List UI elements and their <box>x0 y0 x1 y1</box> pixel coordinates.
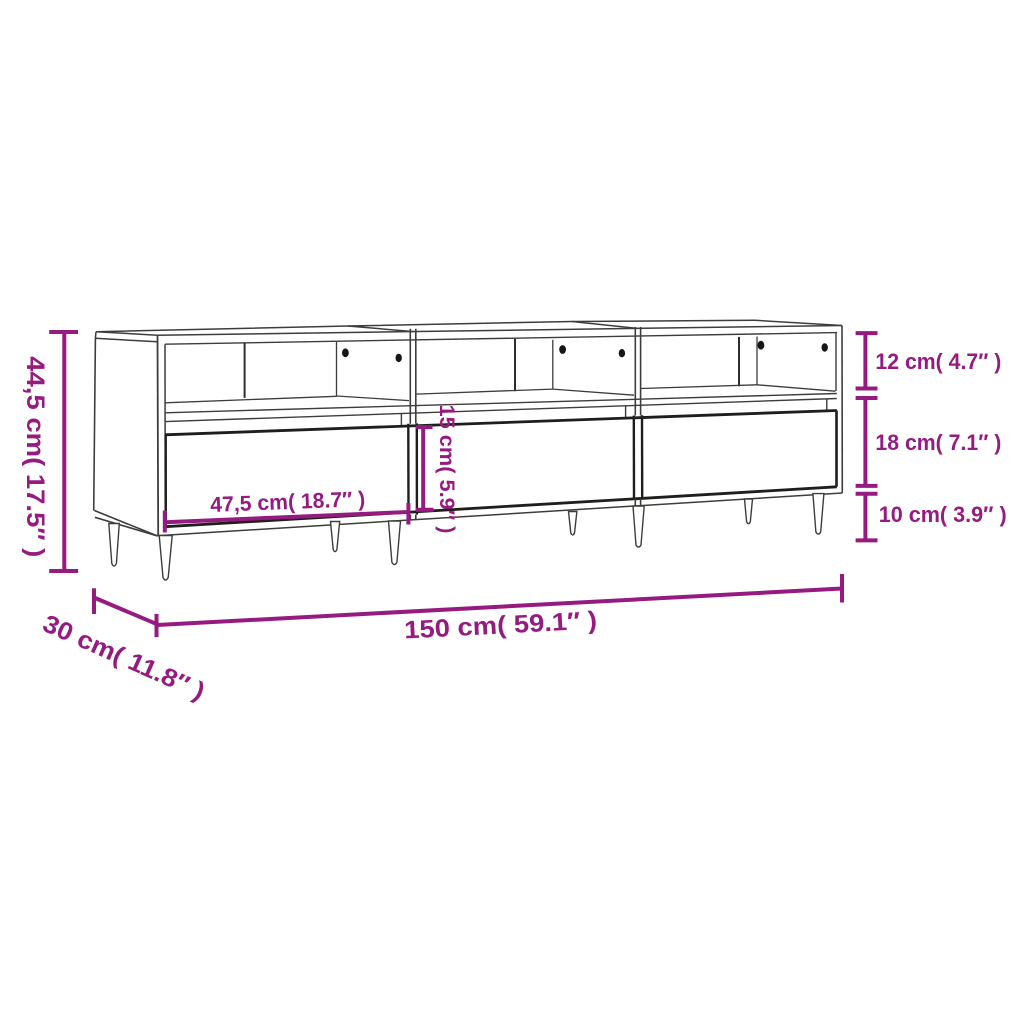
svg-text:44,5 cm( 17.5″ ): 44,5 cm( 17.5″ ) <box>21 356 49 557</box>
svg-text:18 cm( 7.1″ ): 18 cm( 7.1″ ) <box>875 430 1001 455</box>
svg-text:15 cm( 5.9″ ): 15 cm( 5.9″ ) <box>435 405 458 534</box>
svg-text:10 cm( 3.9″ ): 10 cm( 3.9″ ) <box>879 502 1007 527</box>
svg-text:12 cm( 4.7″ ): 12 cm( 4.7″ ) <box>875 349 1001 374</box>
svg-text:47,5 cm( 18.7″ ): 47,5 cm( 18.7″ ) <box>210 487 366 517</box>
